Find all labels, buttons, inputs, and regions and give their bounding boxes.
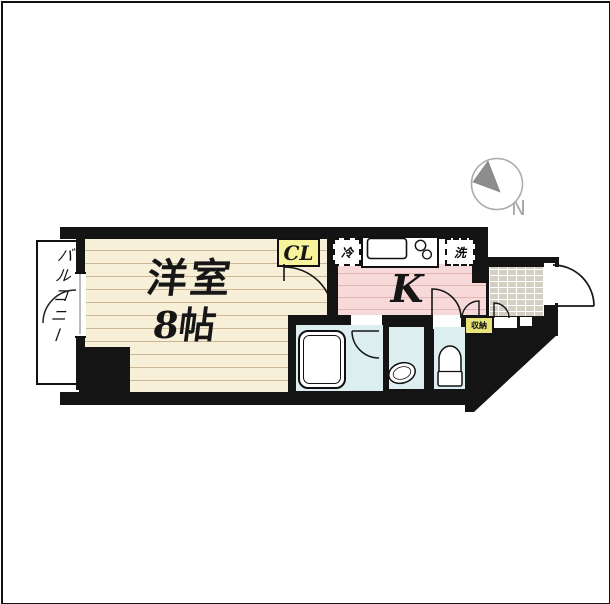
entrance-tile-floor xyxy=(489,265,544,318)
kitchen-label: K xyxy=(383,266,431,312)
closet-box: CL xyxy=(277,238,320,267)
doorway-entrance xyxy=(544,263,555,305)
compass-north-label: N xyxy=(511,196,535,220)
western-room-name: 洋室 xyxy=(112,256,268,302)
toilet-area xyxy=(434,327,465,389)
closet-label: CL xyxy=(284,241,314,265)
shoe-cubby-2 xyxy=(520,317,532,326)
wall-pillar xyxy=(79,347,130,393)
washroom-area xyxy=(389,327,424,389)
western-room-label: 洋室 8帖 xyxy=(106,256,268,352)
kitchen-counter xyxy=(361,236,439,268)
wall-entrance-divider xyxy=(486,264,489,316)
storage-label: 収納 xyxy=(466,318,492,333)
shoe-cubby-1 xyxy=(494,317,517,328)
refrigerator-box: 冷 xyxy=(333,238,361,266)
refrigerator-label: 冷 xyxy=(341,244,353,261)
wall-bottom xyxy=(60,392,313,405)
western-room-size: 8帖 xyxy=(107,302,263,348)
bathroom-area xyxy=(296,325,383,391)
balcony-window xyxy=(75,272,86,338)
washing-machine-label: 洗 xyxy=(454,244,466,261)
washing-machine-box: 洗 xyxy=(445,238,475,266)
floorplan-canvas: 収納 CL 冷 洗 洋室 8帖 K バルコニー N xyxy=(0,0,610,604)
storage-text: 収納 xyxy=(471,320,487,331)
